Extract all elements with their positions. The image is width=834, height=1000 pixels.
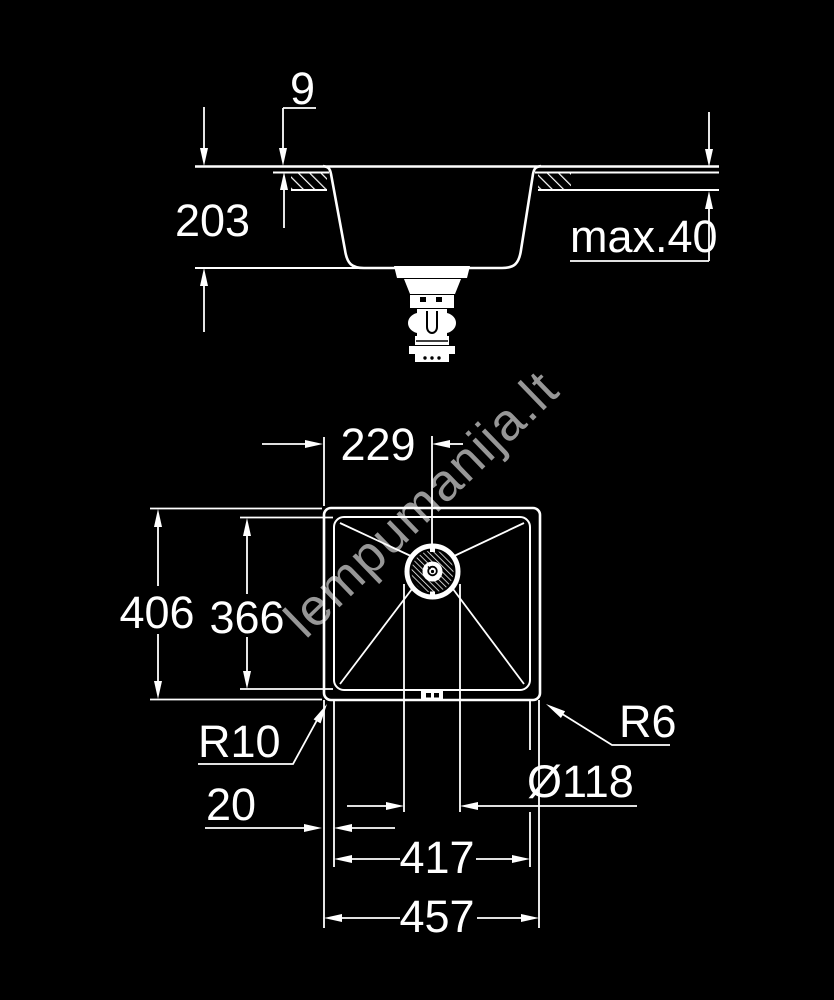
countertop-hatch-right — [538, 173, 571, 190]
drain-tab-bottom — [430, 592, 435, 599]
cross-section-view: 9 203 max.40 — [175, 63, 719, 362]
sink-technical-drawing: 9 203 max.40 — [0, 0, 834, 1000]
dim-label-corner-radius-right: R6 — [619, 696, 677, 747]
dim-label-counter-max: max.40 — [570, 211, 718, 262]
dimension-drain-diameter: Ø118 — [347, 756, 637, 810]
drain-flange-upper — [409, 346, 455, 354]
dimension-counter-max: max.40 — [570, 112, 718, 262]
dimension-corner-radius-left: R10 — [198, 704, 327, 767]
dimension-bowl-depth: 203 — [175, 107, 250, 332]
drain-cap — [394, 266, 470, 278]
dim-label-outer-width: 457 — [399, 891, 474, 942]
dimension-inner-width: 417 — [334, 832, 530, 883]
dimension-corner-radius-right: R6 — [546, 696, 677, 747]
drain-collar — [404, 279, 461, 294]
dim-label-rim-thickness: 9 — [290, 63, 315, 114]
dim-label-drain-diameter: Ø118 — [527, 756, 634, 807]
drain-trap-ball — [408, 309, 456, 336]
plan-view: 229 406 366 R10 — [119, 419, 676, 942]
technical-drawing-canvas: lempumanija.lt — [0, 0, 834, 1000]
dimension-inner-height: 366 — [209, 518, 284, 689]
dim-label-edge-gap: 20 — [206, 779, 256, 830]
dim-label-inner-width: 417 — [399, 832, 474, 883]
bowl-right-wall — [468, 166, 541, 268]
dimension-outer-height: 406 — [119, 509, 194, 699]
dim-label-outer-height: 406 — [119, 587, 194, 638]
dimension-outer-width: 457 — [324, 891, 539, 942]
bowl-left-wall — [323, 166, 397, 268]
countertop-hatch-left — [291, 173, 327, 190]
dim-label-corner-radius-left: R10 — [198, 716, 281, 767]
drain-tab-top — [430, 546, 435, 553]
drain-nut — [410, 295, 454, 308]
dim-label-drain-offset: 229 — [340, 419, 415, 470]
drain-assembly-section — [394, 266, 470, 362]
overflow-marker — [421, 691, 443, 700]
drain-plan-view — [407, 546, 458, 599]
dim-label-bowl-depth: 203 — [175, 195, 250, 246]
dimension-rim-thickness: 9 — [279, 63, 316, 228]
dim-label-inner-height: 366 — [209, 592, 284, 643]
